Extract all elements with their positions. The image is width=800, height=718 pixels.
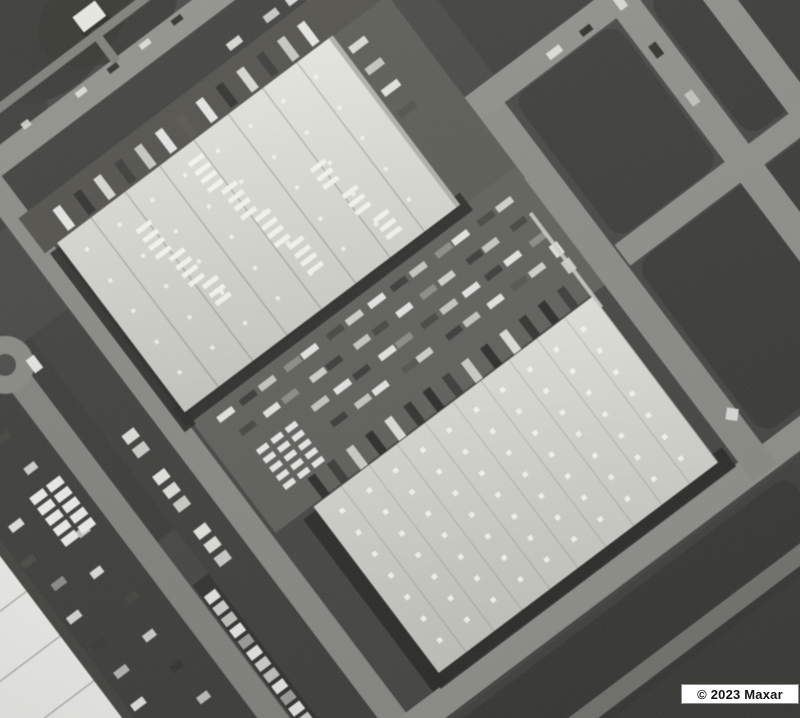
credit-watermark: © 2023 Maxar — [681, 684, 799, 704]
pavement-marking — [725, 407, 739, 421]
satellite-image: © 2023 Maxar — [0, 0, 800, 718]
credit-text: © 2023 Maxar — [697, 687, 783, 702]
satellite-scene — [0, 0, 800, 718]
